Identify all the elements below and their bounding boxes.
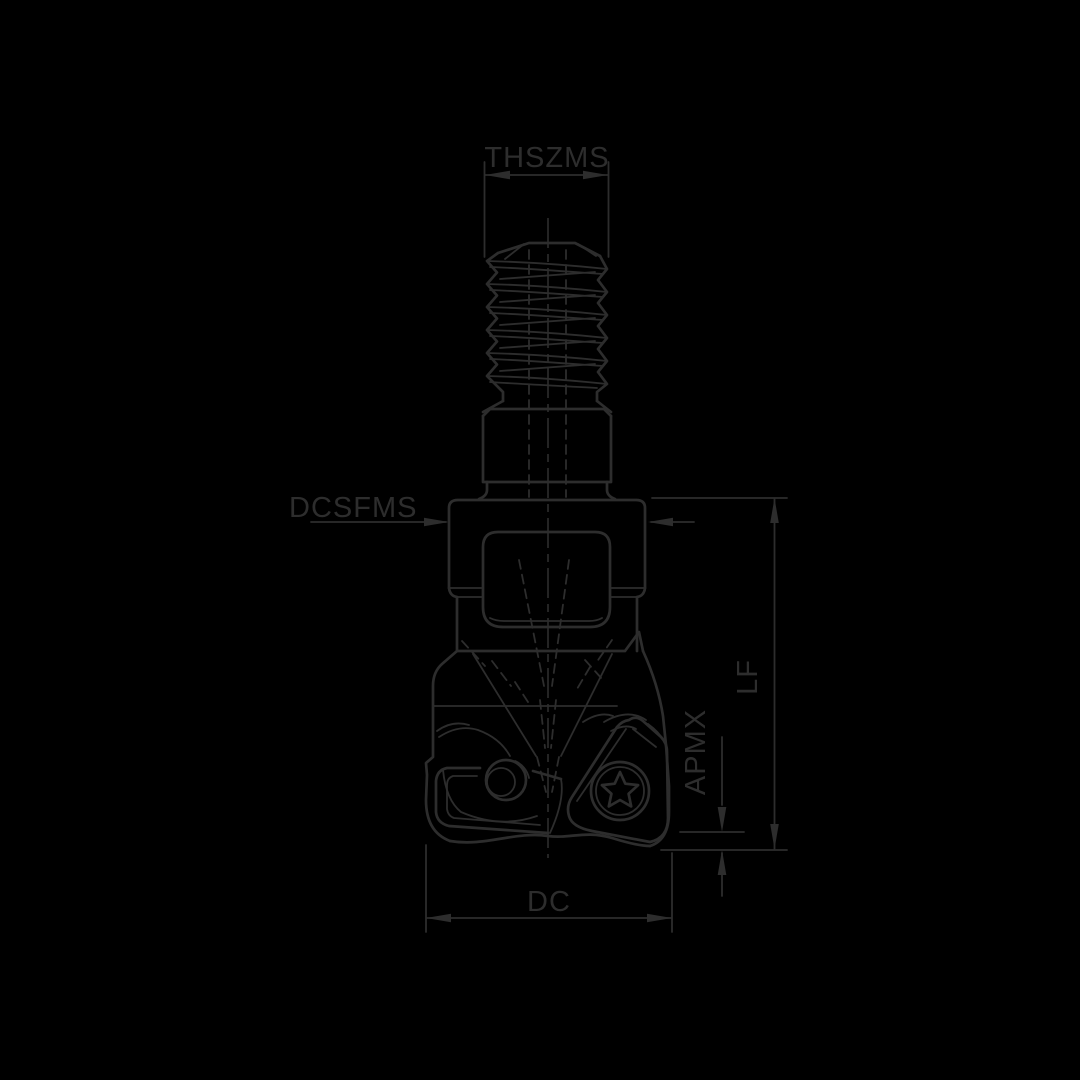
dimension-thszms: THSZMS <box>484 142 609 257</box>
arrowhead-left-icon <box>426 914 451 923</box>
arrowhead-left-icon <box>648 518 673 527</box>
dimension-lf: LF <box>652 498 787 849</box>
arrowhead-down-icon <box>770 824 779 849</box>
technical-drawing: THSZMS DCSFMS LF APMX DC <box>0 0 1080 1080</box>
right-insert <box>568 714 668 842</box>
label-cutting-diameter: DC <box>527 886 571 918</box>
label-functional-length: LF <box>732 659 764 695</box>
torx-screw-icon <box>591 762 649 820</box>
label-shank-diameter: DCSFMS <box>289 492 417 524</box>
dimension-dc: DC <box>426 845 672 932</box>
dimension-apmx: APMX <box>661 709 787 896</box>
arrowhead-right-icon <box>647 914 672 923</box>
tool-drawing-svg: THSZMS DCSFMS LF APMX DC <box>0 0 1080 1080</box>
threaded-shank <box>487 243 607 497</box>
label-max-depth-of-cut: APMX <box>680 709 712 795</box>
left-insert <box>436 760 562 833</box>
arrowhead-up-icon <box>718 850 727 875</box>
arrowhead-down-icon <box>718 807 727 832</box>
dimension-dcsfms: DCSFMS <box>289 492 694 526</box>
arrowhead-right-icon <box>424 518 449 527</box>
left-clamp-screw-icon <box>486 760 529 800</box>
label-thread-size: THSZMS <box>484 142 609 174</box>
arrowhead-up-icon <box>770 498 779 523</box>
thread-helix-lines <box>487 261 607 388</box>
collar <box>479 401 615 499</box>
